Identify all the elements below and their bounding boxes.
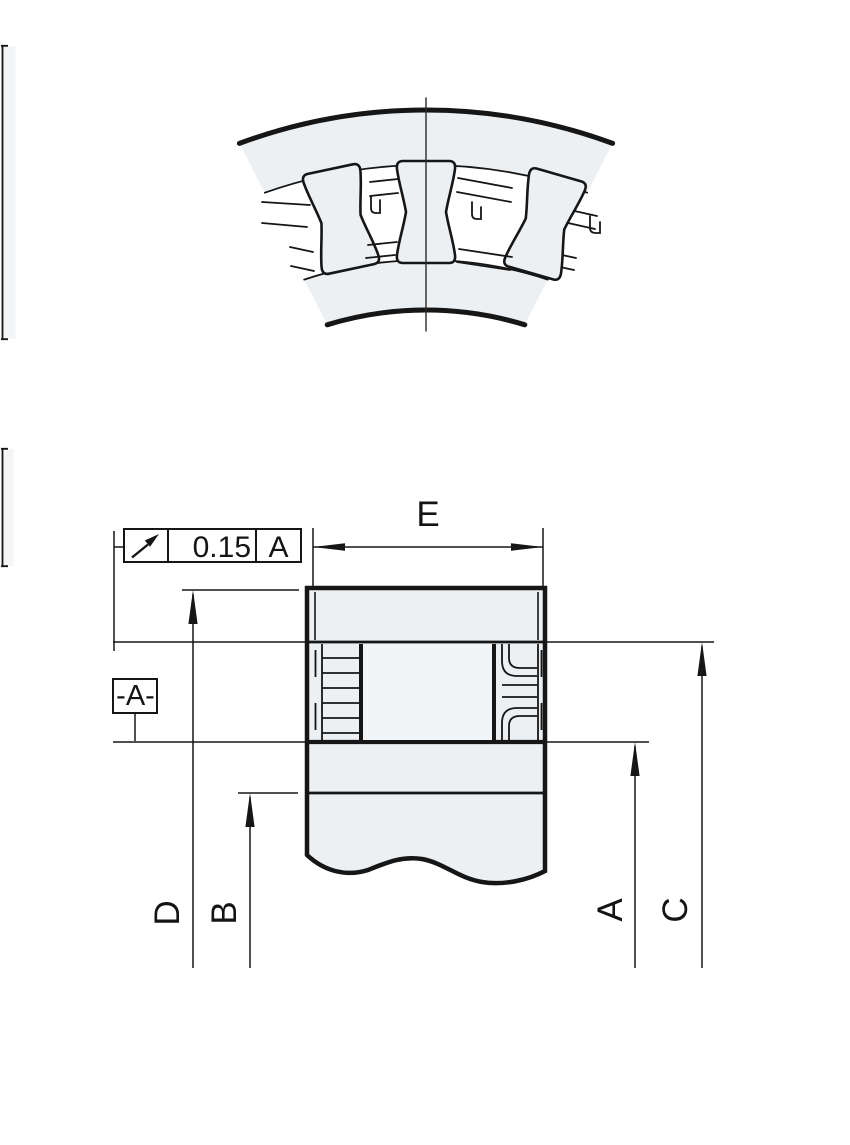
sector-detail-view [239, 98, 612, 331]
cross-section-view [307, 588, 545, 883]
arrowhead-up [188, 590, 197, 624]
cage-hook-gap1 [371, 196, 380, 213]
fcf-tolerance-value: 0.15 [193, 531, 251, 564]
page-border-fragments [1, 45, 16, 567]
cage-stub-upper-left [262, 202, 310, 227]
cage-hook-gap2 [472, 202, 481, 219]
border-cell-shade [4, 449, 14, 566]
cage-stub-lower-left [290, 247, 314, 271]
arrowhead-up [245, 793, 254, 827]
fcf-datum-reference: A [268, 531, 288, 564]
arrowhead-up [697, 642, 706, 676]
dimension-b [245, 793, 254, 968]
dimension-a [630, 742, 639, 968]
cage-bar-gap2-upper [457, 178, 512, 202]
dim-a-label: A [591, 898, 630, 922]
arrowhead-left [313, 543, 345, 551]
cage-bar-gap1-upper [370, 179, 398, 196]
dimension-c [697, 642, 706, 968]
dimension-e [313, 528, 543, 586]
dim-e-label: E [416, 495, 439, 534]
dimension-d [188, 590, 197, 968]
datum-label: -A- [116, 680, 155, 712]
dim-b-label: B [205, 901, 244, 924]
roller-chamber-fill [363, 644, 492, 740]
dim-c-label: C [656, 897, 695, 922]
cage-hook-right [590, 216, 600, 233]
dim-d-label: D [148, 900, 187, 925]
bearing-technical-drawing: E 0.15 A -A- D B A C [0, 0, 850, 1145]
border-cell-shade [4, 46, 16, 339]
technical-drawing-page: E 0.15 A -A- D B A C [0, 0, 850, 1145]
arrowhead-up [630, 742, 639, 776]
rollers [302, 161, 587, 281]
arrowhead-right [511, 543, 543, 551]
